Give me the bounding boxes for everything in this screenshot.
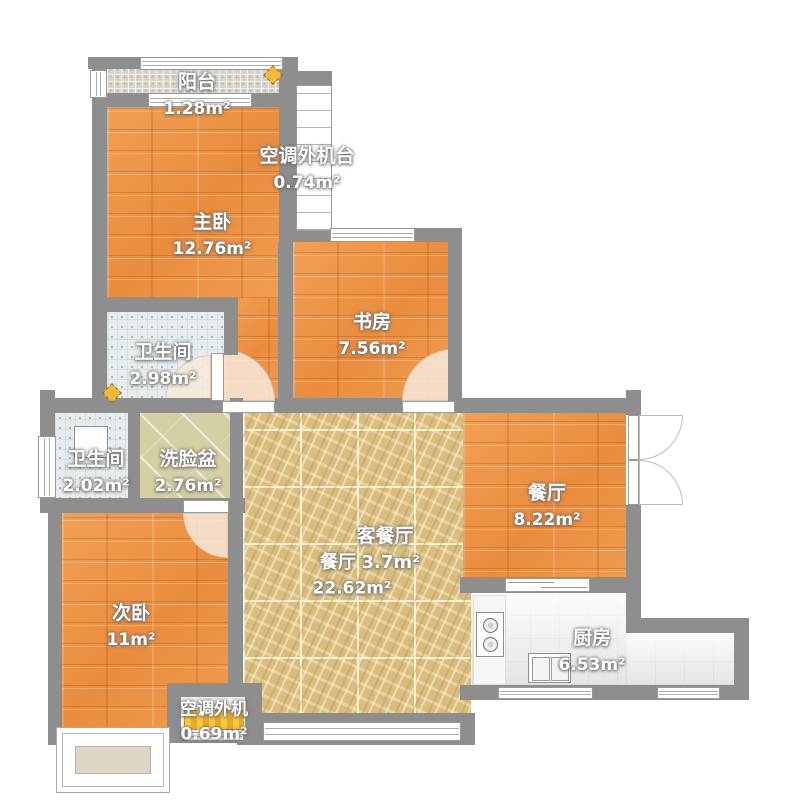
room-name: 阳台: [163, 69, 230, 97]
door-leaf-master[interactable]: [222, 401, 275, 413]
wall: [92, 312, 107, 400]
room-area: 7.56m²: [338, 336, 405, 361]
door-leaf-study[interactable]: [402, 401, 455, 413]
floor-plan: 阳台 1.28m² 空调外机台 0.74m² 主卧 12.76m² 书房 7.5…: [0, 0, 800, 800]
wall: [455, 398, 641, 413]
wall: [626, 505, 641, 633]
room-name: 卫生间: [62, 446, 129, 474]
room-name: 餐厅: [320, 552, 356, 573]
room-name: 洗脸盆: [154, 446, 221, 474]
kitchen-sliding-door[interactable]: [505, 578, 590, 592]
label-bathroom-upper: 卫生间 2.98m²: [129, 339, 196, 391]
label-balcony: 阳台 1.28m²: [163, 69, 230, 121]
room-name: 餐厅: [513, 480, 580, 508]
label-dining-zone: 餐厅 3.7m²: [320, 550, 420, 576]
room-name: 书房: [338, 309, 405, 337]
label-dining-room: 餐厅 8.22m²: [513, 480, 580, 532]
label-master-bedroom: 主卧 12.76m²: [173, 209, 252, 261]
room-name: 次卧: [107, 600, 156, 628]
label-ac-platform: 空调外机台 0.74m²: [259, 143, 354, 195]
door-leaf-bathroom-upper[interactable]: [211, 353, 224, 401]
door-arc-dining-french-top[interactable]: [639, 415, 683, 460]
kitchen-extension-window[interactable]: [657, 687, 720, 699]
room-name: 空调外机台: [259, 143, 354, 171]
room-name: 厨房: [558, 625, 625, 653]
room-name: 客餐厅: [356, 523, 413, 551]
balcony-side-window[interactable]: [90, 70, 107, 98]
wall: [448, 228, 462, 413]
wall: [626, 618, 749, 633]
room-master-bedroom[interactable]: [107, 96, 279, 298]
bay-window-frame: [62, 733, 164, 787]
label-living-dining-name: 客餐厅: [356, 523, 413, 551]
room-area: 8.22m²: [513, 507, 580, 532]
room-area: 6.53m²: [558, 652, 625, 677]
room-kitchen-extension[interactable]: [626, 633, 734, 685]
kitchen-window[interactable]: [498, 687, 593, 699]
wall: [230, 398, 243, 513]
wall: [275, 398, 402, 413]
label-kitchen: 厨房 6.53m²: [558, 625, 625, 677]
door-leaf-dining-french-bottom[interactable]: [628, 460, 639, 505]
room-area: 11m²: [107, 627, 156, 652]
study-window[interactable]: [330, 228, 415, 242]
room-name: 主卧: [173, 209, 252, 237]
wall: [100, 298, 238, 312]
stove-burner-icon: [483, 637, 498, 652]
room-area: 0.74m²: [259, 170, 354, 195]
stove-burner-icon: [483, 618, 498, 633]
door-leaf-dining-french-top[interactable]: [628, 415, 639, 460]
label-study: 书房 7.56m²: [338, 309, 405, 361]
room-area: 0.69m²: [180, 723, 247, 748]
label-living-dining-area: 22.62m²: [313, 577, 392, 602]
sink-bowl: [532, 657, 550, 681]
room-area: 1.28m²: [163, 96, 230, 121]
label-second-bedroom: 次卧 11m²: [107, 600, 156, 652]
bay-window-sill: [75, 746, 151, 774]
room-name: 卫生间: [129, 339, 196, 367]
second-bedroom-bay-window[interactable]: [56, 727, 170, 793]
label-bathroom-lower: 卫生间 2.02m²: [62, 446, 129, 498]
bathroom-lower-window[interactable]: [38, 436, 56, 498]
wall: [128, 413, 140, 500]
wall: [278, 242, 293, 400]
room-name: 空调外机: [180, 698, 248, 723]
label-ac-outdoor-name: 空调外机: [180, 698, 248, 723]
wall: [48, 498, 62, 745]
room-area: 12.76m²: [173, 236, 252, 261]
wall: [224, 298, 238, 355]
stove[interactable]: [476, 612, 504, 657]
label-wash-basin: 洗脸盆 2.76m²: [154, 446, 221, 498]
wall: [40, 398, 222, 413]
label-ac-outdoor-area: 0.69m²: [180, 723, 247, 748]
room-area: 2.98m²: [129, 366, 196, 391]
living-room-window[interactable]: [263, 722, 461, 741]
room-area: 22.62m²: [313, 577, 392, 602]
door-arc-dining-french-bottom[interactable]: [639, 460, 683, 505]
room-area: 3.7m²: [362, 552, 421, 573]
door-leaf-second-bedroom[interactable]: [183, 500, 229, 513]
wall: [626, 390, 641, 415]
room-area: 2.02m²: [62, 473, 129, 498]
room-area: 2.76m²: [154, 473, 221, 498]
